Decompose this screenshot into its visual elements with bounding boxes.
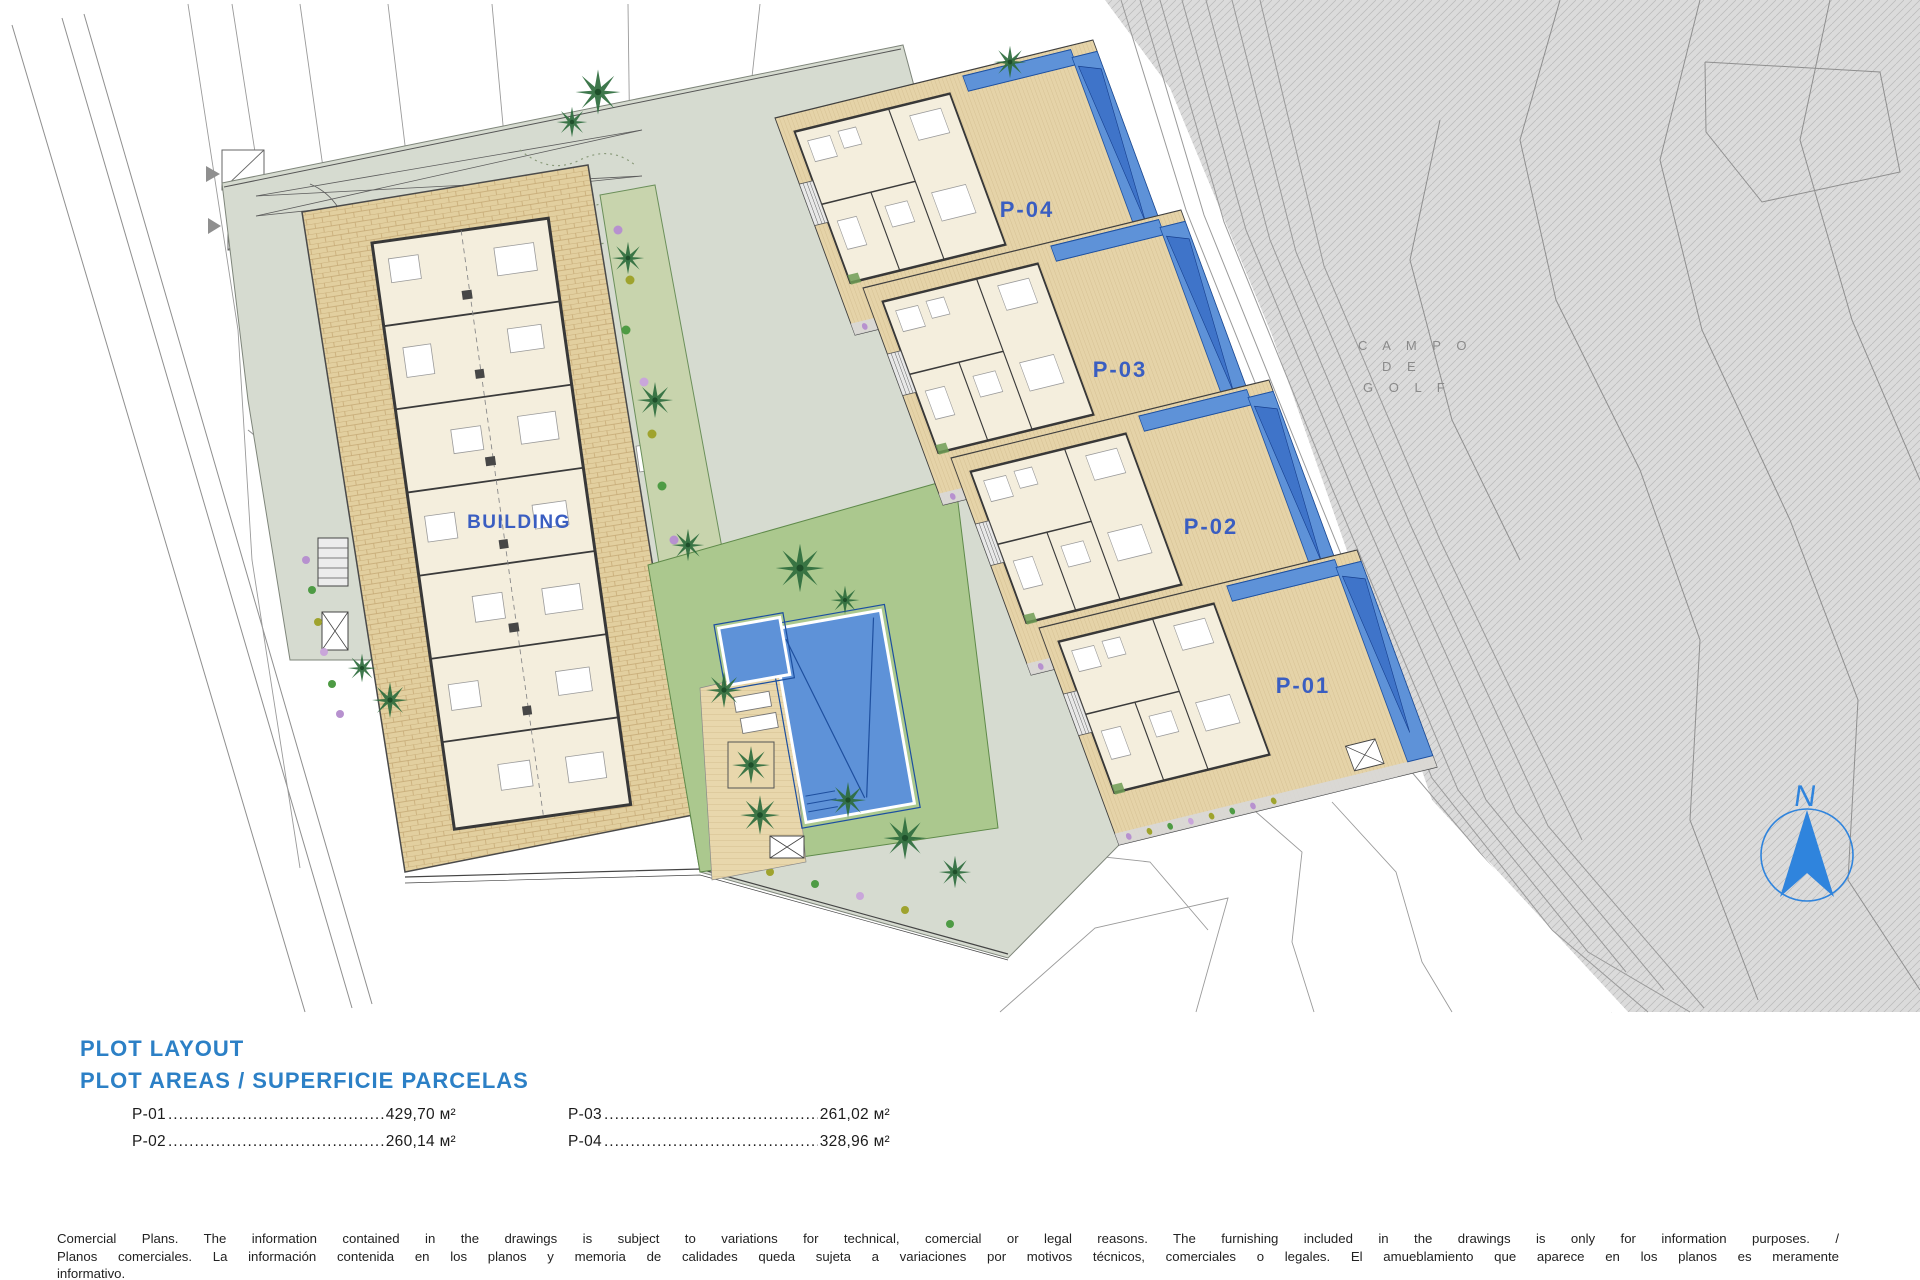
plot-areas-title: PLOT AREAS / SUPERFICIE PARCELAS bbox=[80, 1068, 529, 1094]
plot-area-label: P-03 bbox=[568, 1106, 602, 1124]
plot-area-value: 429,70 м² bbox=[386, 1106, 456, 1124]
plot-area-label: P-01 bbox=[132, 1106, 166, 1124]
svg-text:D E: D E bbox=[1382, 359, 1422, 374]
plot-area-label: P-04 bbox=[568, 1133, 602, 1151]
dotted-leader bbox=[604, 1133, 818, 1151]
plot-layout-title: PLOT LAYOUT bbox=[80, 1036, 244, 1062]
site-plan: C A M P O D E G O L F bbox=[0, 0, 1920, 1022]
plot-label-p02: P-02 bbox=[1184, 514, 1238, 539]
svg-text:C A M P O: C A M P O bbox=[1358, 338, 1472, 353]
plot-area-row-p02: P-02 260,14 м² bbox=[132, 1133, 456, 1151]
dotted-leader bbox=[604, 1106, 818, 1124]
info-panel: PLOT LAYOUT PLOT AREAS / SUPERFICIE PARC… bbox=[0, 1022, 1920, 1280]
plot-area-row-p01: P-01 429,70 м² bbox=[132, 1106, 456, 1124]
plot-area-row-p03: P-03 261,02 м² bbox=[568, 1106, 890, 1124]
plot-area-value: 261,02 м² bbox=[820, 1106, 890, 1124]
lawn-gate bbox=[770, 836, 804, 858]
dotted-leader bbox=[168, 1133, 384, 1151]
north-label: N bbox=[1792, 780, 1818, 813]
plot-area-value: 260,14 м² bbox=[386, 1133, 456, 1151]
disclaimer-line-en: Comercial Plans. The information contain… bbox=[57, 1230, 1839, 1248]
plot-area-value: 328,96 м² bbox=[820, 1133, 890, 1151]
disclaimer-line-es: Planos comerciales. La información conte… bbox=[57, 1248, 1839, 1266]
plot-label-p03: P-03 bbox=[1093, 357, 1147, 382]
plot-areas-column-2: P-03 261,02 м² P-04 328,96 м² bbox=[568, 1106, 890, 1151]
plot-area-row-p04: P-04 328,96 м² bbox=[568, 1133, 890, 1151]
building-label: BUILDING bbox=[467, 512, 571, 533]
dotted-leader bbox=[168, 1106, 384, 1124]
plot-label-p01: P-01 bbox=[1276, 673, 1330, 698]
plot-layout-sheet: C A M P O D E G O L F bbox=[0, 0, 1920, 1280]
plot-area-label: P-02 bbox=[132, 1133, 166, 1151]
svg-text:G O L F: G O L F bbox=[1363, 380, 1451, 395]
disclaimer-text: Comercial Plans. The information contain… bbox=[57, 1230, 1839, 1280]
plot-label-p04: P-04 bbox=[1000, 197, 1054, 222]
plot-areas-column-1: P-01 429,70 м² P-02 260,14 м² bbox=[132, 1106, 456, 1151]
site-plan-drawing: C A M P O D E G O L F bbox=[0, 0, 1920, 1022]
disclaimer-line-es2: informativo. bbox=[57, 1265, 1839, 1280]
